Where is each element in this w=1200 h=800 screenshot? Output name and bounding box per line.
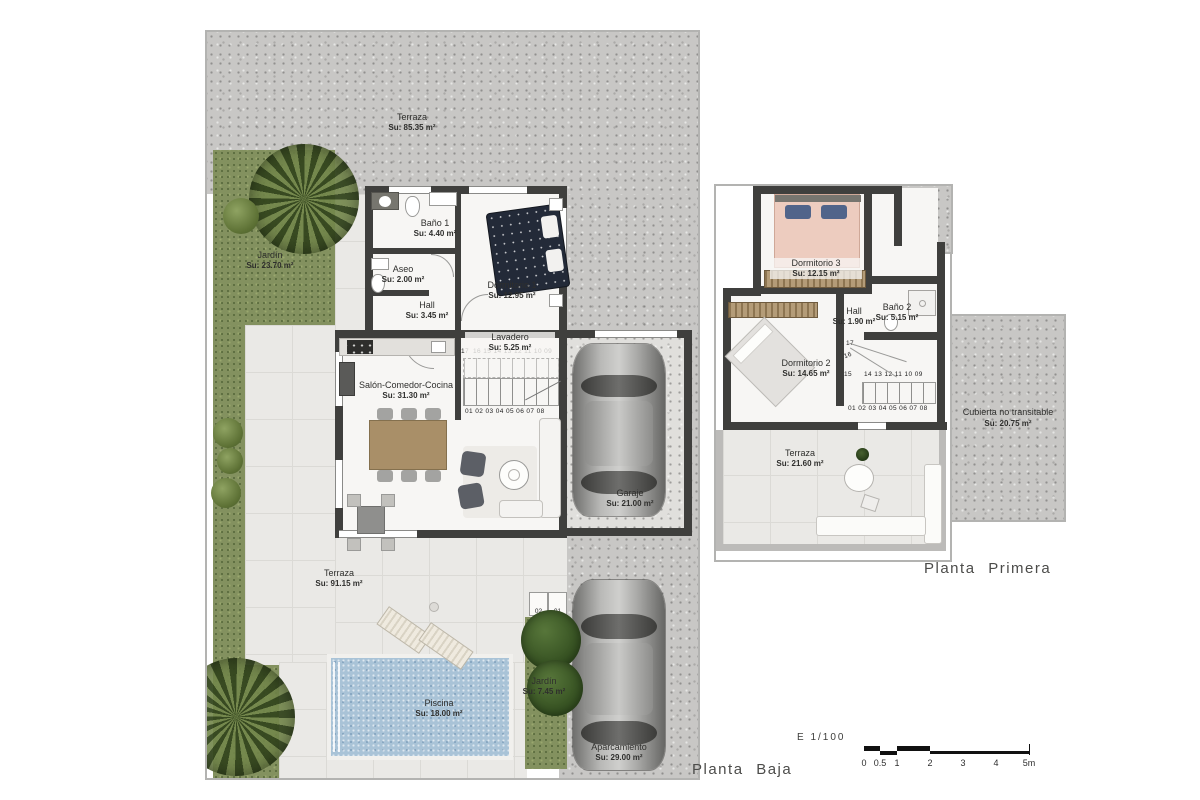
patio-chair xyxy=(347,538,361,551)
car-windshield xyxy=(581,375,656,397)
first-floor-title: Planta Primera xyxy=(924,560,1051,577)
scale-tick-5m: 5m xyxy=(1023,758,1036,768)
scale-end-tick xyxy=(1029,744,1030,755)
basin xyxy=(379,196,391,207)
scale-tick-4: 4 xyxy=(993,758,998,768)
room-area: Su: 85.35 m² xyxy=(362,123,462,133)
room-label-garaje: Garaje Su: 21.00 m² xyxy=(587,488,673,509)
dining-table xyxy=(369,420,447,470)
room-label-cubierta: Cubierta no transitable Su: 20.75 m² xyxy=(958,407,1058,428)
scale-label: E 1/100 xyxy=(797,732,845,743)
stove xyxy=(347,340,373,354)
pillow xyxy=(541,215,560,239)
room-label-terraza-first: Terraza Su: 21.60 m² xyxy=(758,448,842,469)
concrete-right-strip xyxy=(692,334,700,535)
room-label-aseo: Aseo Su: 2.00 m² xyxy=(365,264,441,285)
bush xyxy=(217,448,243,474)
car-windshield xyxy=(581,614,656,639)
bush xyxy=(223,198,259,234)
f-wall-bottom xyxy=(723,422,947,430)
garden-left-strip xyxy=(213,325,245,697)
terrace-tiles-left xyxy=(245,325,335,665)
pillow xyxy=(785,205,811,219)
coffee-table-inner xyxy=(508,469,520,481)
room-label-aparcamiento: Aparcamiento Su: 29.00 m² xyxy=(567,742,671,763)
headboard xyxy=(775,195,861,202)
pillow xyxy=(821,205,847,219)
scale-tick-0: 0 xyxy=(861,758,866,768)
f-wall-bath2-top xyxy=(864,276,945,284)
terrace-parapet-left xyxy=(716,430,723,551)
room-label-piscina: Piscina Su: 18.00 m² xyxy=(397,698,481,719)
stair-numbers-lower: 01 02 03 04 05 06 07 08 xyxy=(465,408,545,415)
bush xyxy=(211,478,241,508)
terrace-parapet-bottom xyxy=(716,544,946,551)
f-wall-roof-corner xyxy=(894,186,902,246)
ground-floor-title: Planta Baja xyxy=(692,761,792,778)
patio-chair xyxy=(381,494,395,507)
scale-tick-2: 2 xyxy=(927,758,932,768)
car-roof xyxy=(585,401,653,466)
concrete-right-band xyxy=(559,194,700,334)
pillow xyxy=(545,248,564,272)
f-wall-left-upper xyxy=(753,186,761,296)
room-label-jardin-left: Jardín Su: 23.70 m² xyxy=(225,250,315,271)
scale-segment xyxy=(930,751,1029,754)
stair-flight-lower xyxy=(463,378,559,406)
sofa-chaise xyxy=(499,500,543,518)
window-living-left-b xyxy=(335,460,343,508)
stair-numbers-lower: 01 02 03 04 05 06 07 08 xyxy=(848,405,928,412)
room-label-dormitorio1: Dormitorio 1 Su: 12.95 m² xyxy=(466,280,558,301)
window-bedroom1-top xyxy=(469,186,527,194)
patio-table xyxy=(357,506,385,534)
armchair xyxy=(457,482,485,510)
f-terrace-door xyxy=(858,422,886,430)
lounger-side-table xyxy=(429,602,439,612)
room-label-hall: Hall Su: 3.45 m² xyxy=(389,300,465,321)
floorplan-sheet: 17 16 15 14 13 12 11 10 09 01 02 03 04 0… xyxy=(0,0,1200,800)
dining-chair xyxy=(401,408,417,420)
dining-chair xyxy=(377,408,393,420)
staircase-first: 17 16 15 14 13 12 11 10 09 01 02 03 04 0… xyxy=(844,338,938,416)
f-wall-top xyxy=(753,186,901,194)
staircase-ground: 17 16 15 14 13 12 11 10 09 01 02 03 04 0… xyxy=(461,346,561,420)
room-label-salon: Salón-Comedor-Cocina Su: 31.30 m² xyxy=(351,380,461,401)
flat-roof-area: Cubierta no transitable Su: 20.75 m² xyxy=(950,314,1066,522)
nightstand xyxy=(549,198,563,211)
stair-flight xyxy=(862,382,936,404)
scale-tick-05: 0.5 xyxy=(874,758,887,768)
room-label-jardin-front: Jardín Su: 7.45 m² xyxy=(513,676,575,697)
terrace-table xyxy=(844,464,874,492)
wall-garage-bottom xyxy=(567,528,692,536)
scale-tick-3: 3 xyxy=(960,758,965,768)
coffee-table xyxy=(499,460,529,490)
dining-chair xyxy=(425,470,441,482)
patio-chair xyxy=(347,494,361,507)
vanity-bath1 xyxy=(371,192,399,210)
scale-bar: 0 0.5 1 2 3 4 5m xyxy=(864,742,1036,776)
ground-floor-plan: 17 16 15 14 13 12 11 10 09 01 02 03 04 0… xyxy=(205,30,700,780)
room-label-terraza-main: Terraza Su: 91.15 m² xyxy=(297,568,381,589)
dining-chair xyxy=(425,408,441,420)
pool-steps xyxy=(333,662,343,752)
stair-flight-upper xyxy=(463,358,559,378)
car-roof xyxy=(585,643,653,715)
scale-segment xyxy=(864,746,880,751)
palm-tree-top xyxy=(249,144,359,254)
scale-segment xyxy=(880,751,897,755)
room-label-bano1: Baño 1 Su: 4.40 m² xyxy=(395,218,475,239)
toilet-bath1 xyxy=(405,196,420,217)
scale-tick-1: 1 xyxy=(894,758,899,768)
terrace-sofa xyxy=(816,516,926,536)
patio-chair xyxy=(381,538,395,551)
armchair xyxy=(459,450,486,477)
dining-chair xyxy=(377,470,393,482)
bed-bedroom3 xyxy=(774,194,860,268)
room-name: Terraza xyxy=(362,112,462,123)
sink-bath1 xyxy=(429,192,457,206)
wall-garage-right xyxy=(684,330,692,536)
room-label-terraza-top: Terraza Su: 85.35 m² xyxy=(362,112,462,133)
room-label-dormitorio2: Dormitorio 2 Su: 14.65 m² xyxy=(760,358,852,379)
wardrobe-bedroom2 xyxy=(728,302,818,318)
scale-segment xyxy=(897,746,930,751)
room-label-dormitorio3: Dormitorio 3 Su: 12.15 m² xyxy=(770,258,862,279)
wall-living-bottom xyxy=(417,530,567,538)
dining-chair xyxy=(401,470,417,482)
wall-bath-aseo xyxy=(365,248,457,254)
bush xyxy=(213,418,243,448)
terrace-plant xyxy=(856,448,869,461)
kitchen-sink xyxy=(431,341,446,353)
room-label-hall-first: Hall Su: 1.90 m² xyxy=(828,306,880,327)
terrace-sofa xyxy=(924,464,942,544)
room-label-lavadero: Lavadero Su: 5.25 m² xyxy=(465,332,555,353)
garage-door xyxy=(595,330,677,338)
first-floor-plan: Cubierta no transitable Su: 20.75 m² 17 … xyxy=(710,180,1070,570)
